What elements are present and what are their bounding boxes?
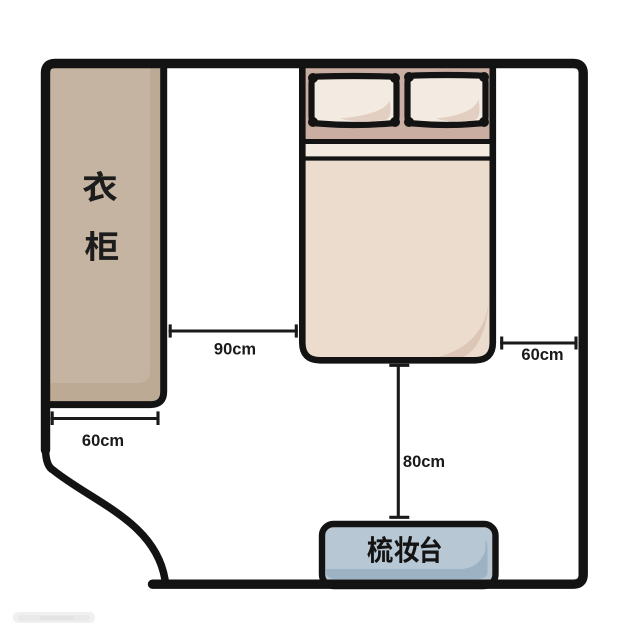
svg-text:90cm: 90cm [214, 341, 256, 359]
svg-text:80cm: 80cm [403, 453, 445, 471]
svg-text:60cm: 60cm [521, 346, 563, 364]
svg-text:60cm: 60cm [82, 432, 124, 450]
